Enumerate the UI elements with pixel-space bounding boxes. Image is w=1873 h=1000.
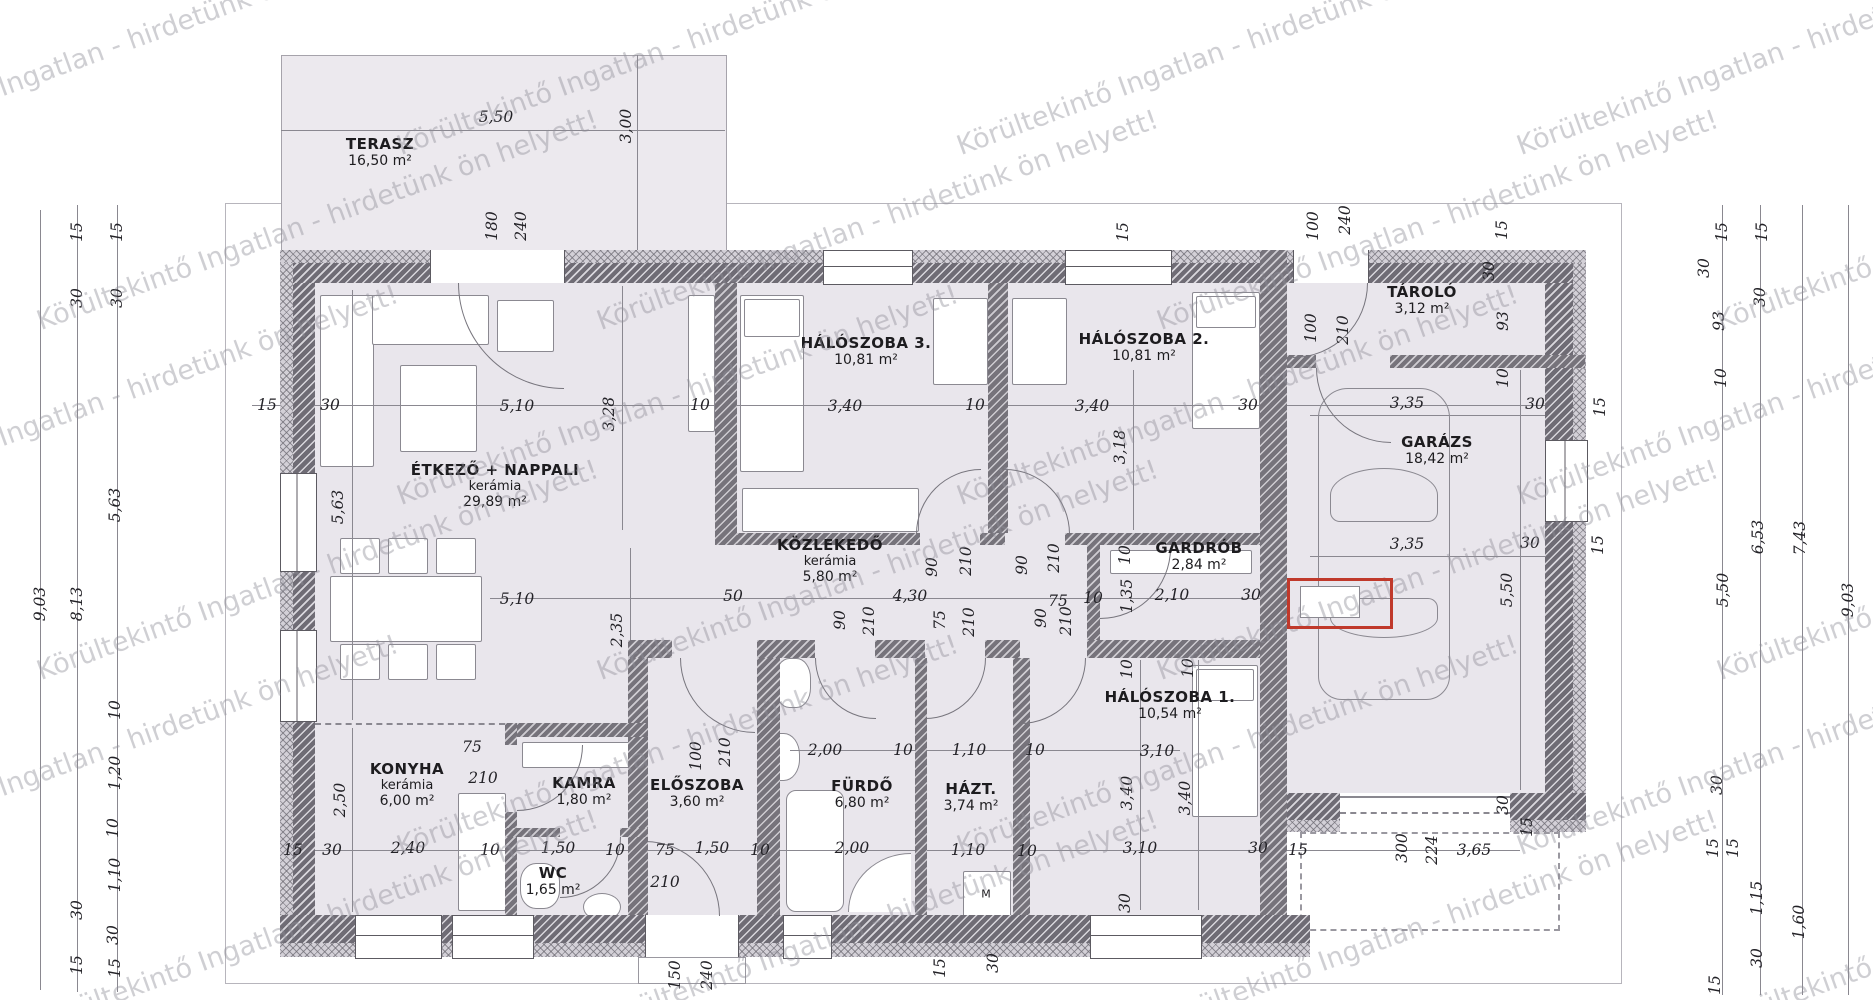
entrance-door-opening: [645, 915, 739, 957]
wall-left: [293, 283, 315, 915]
driveway-dashed: [1300, 832, 1560, 931]
washing-machine: [963, 871, 1011, 919]
dimension-label: 6,53: [1749, 520, 1767, 555]
dim-line: [490, 598, 1290, 599]
furniture-desk: [933, 298, 988, 385]
dim-line: [1310, 556, 1545, 557]
wall-entry-bath: [757, 658, 780, 915]
car-windshield: [1330, 468, 1438, 522]
dim-line: [1722, 205, 1723, 995]
dimension-label: 10: [104, 818, 122, 838]
terrace-area: [281, 55, 727, 252]
insulation-garage-bottom-right: [1510, 820, 1586, 832]
furniture-chair: [388, 538, 428, 574]
window-kitchen-bottom: [355, 915, 442, 959]
dim-line: [790, 750, 1180, 751]
storage-door-opening: [1293, 250, 1369, 283]
furniture-cabinet: [742, 488, 919, 532]
dimension-label: 10: [1712, 368, 1730, 388]
dim-line: [281, 130, 725, 131]
wall-bedrooms-hall: [1065, 533, 1260, 545]
dim-line: [1520, 370, 1521, 790]
dimension-label: 15: [1753, 222, 1771, 242]
furniture-chair: [436, 538, 476, 574]
dimension-label: 15: [106, 958, 124, 978]
dim-line: [1140, 660, 1141, 910]
dim-line: [352, 290, 353, 720]
furniture-chair: [436, 644, 476, 680]
dimension-label: 1,10: [106, 858, 124, 893]
dim-line: [117, 205, 118, 992]
wall-bedrooms-hall: [980, 533, 1005, 545]
furniture-pillow: [1196, 296, 1256, 328]
dimension-label: 5,50: [1714, 573, 1732, 608]
wall-hall-south: [1087, 640, 1260, 658]
wall-pantry-wc: [620, 828, 648, 837]
bathtub: [786, 790, 844, 912]
insulation-garage-bottom-left: [1287, 820, 1340, 832]
dimension-label: 15: [1704, 838, 1722, 858]
dimension-label: 30: [1708, 775, 1726, 795]
wall-storage-bottom: [1390, 355, 1585, 368]
furniture-chair: [340, 644, 380, 680]
window-garage-right: [1545, 440, 1588, 522]
wall-house-east: [1260, 250, 1287, 915]
window-living-left: [280, 473, 317, 572]
window-bedroom1-bottom: [1090, 915, 1202, 959]
garage-door-dashed: [1340, 812, 1510, 814]
furniture-chair: [340, 538, 380, 574]
entrance-stoop: [638, 957, 746, 984]
wall-wardrobe-left: [1087, 545, 1100, 640]
dimension-label: 93: [1710, 311, 1728, 331]
dim-line: [1133, 370, 1134, 530]
wall-pantry-top: [517, 723, 648, 737]
furniture-pillow: [744, 299, 800, 337]
window-bath-bottom: [783, 915, 832, 959]
dim-line: [77, 205, 78, 992]
toilet: [520, 863, 560, 909]
wall-entry-top: [628, 640, 672, 658]
wall-bedrooms-hall: [737, 533, 920, 545]
dim-line: [1802, 205, 1803, 995]
toilet: [775, 658, 811, 708]
floor-plan: TERASZ16,50 m²ÉTKEZŐ + NAPPALIkerámia29,…: [0, 0, 1873, 1000]
dim-line: [1760, 205, 1761, 995]
wall-hall-south: [875, 640, 925, 658]
furniture-sofa: [320, 295, 374, 467]
furniture-pillow: [1196, 669, 1254, 701]
dim-line: [1198, 660, 1199, 910]
wall-garage-bottom-left: [1287, 793, 1340, 820]
wall-pantry-wc: [505, 828, 560, 837]
watermark-text: Körültekintő Ingatlan - hirdetünk ön hel…: [953, 0, 1523, 162]
dimension-label: 30: [104, 925, 122, 945]
insulation-right: [1573, 263, 1586, 832]
watermark-text: Körültekintő Ingatlan - hirdetünk ön hel…: [1513, 0, 1873, 162]
dim-line: [352, 728, 353, 912]
window-bedroom2: [1065, 250, 1172, 285]
dimension-label: 30: [1695, 258, 1713, 278]
furniture-chair: [388, 644, 428, 680]
terrace-door-opening: [430, 250, 565, 283]
wall-garage-bottom-right: [1510, 793, 1586, 820]
annotation-red-box: [1287, 578, 1393, 629]
furniture-tv-bench: [688, 295, 715, 432]
dimension-label: 1,15: [1748, 881, 1766, 916]
dimension-label: 15: [1724, 838, 1742, 858]
dimension-label: 7,43: [1791, 521, 1809, 556]
dimension-label: 5,63: [106, 488, 124, 523]
furniture-desk: [1012, 298, 1067, 385]
furniture-fridge: [458, 793, 506, 911]
window-bedroom3: [823, 250, 913, 285]
window-wc-bottom: [452, 915, 534, 959]
dim-line: [40, 210, 41, 990]
dimension-label: 1,60: [1790, 905, 1808, 940]
dimension-label: 10: [106, 700, 124, 720]
dim-line: [637, 55, 638, 250]
dim-line: [622, 286, 623, 530]
insulation-left: [280, 263, 293, 957]
dimension-label: 30: [1748, 948, 1766, 968]
wall-hall-south: [985, 640, 1020, 658]
wall-livingroom-bedroom3: [715, 283, 737, 545]
dim-line: [1848, 205, 1849, 995]
dimension-label: 1,20: [106, 756, 124, 791]
dim-line: [281, 850, 1520, 851]
furniture-coffee-table: [400, 365, 477, 452]
kitchen-boundary-dashed: [315, 723, 505, 725]
window-kitchen-left: [280, 630, 317, 722]
wall-hall-south: [757, 640, 815, 658]
garage-door-line: [1340, 796, 1510, 798]
wall-pantry-left: [505, 723, 517, 745]
